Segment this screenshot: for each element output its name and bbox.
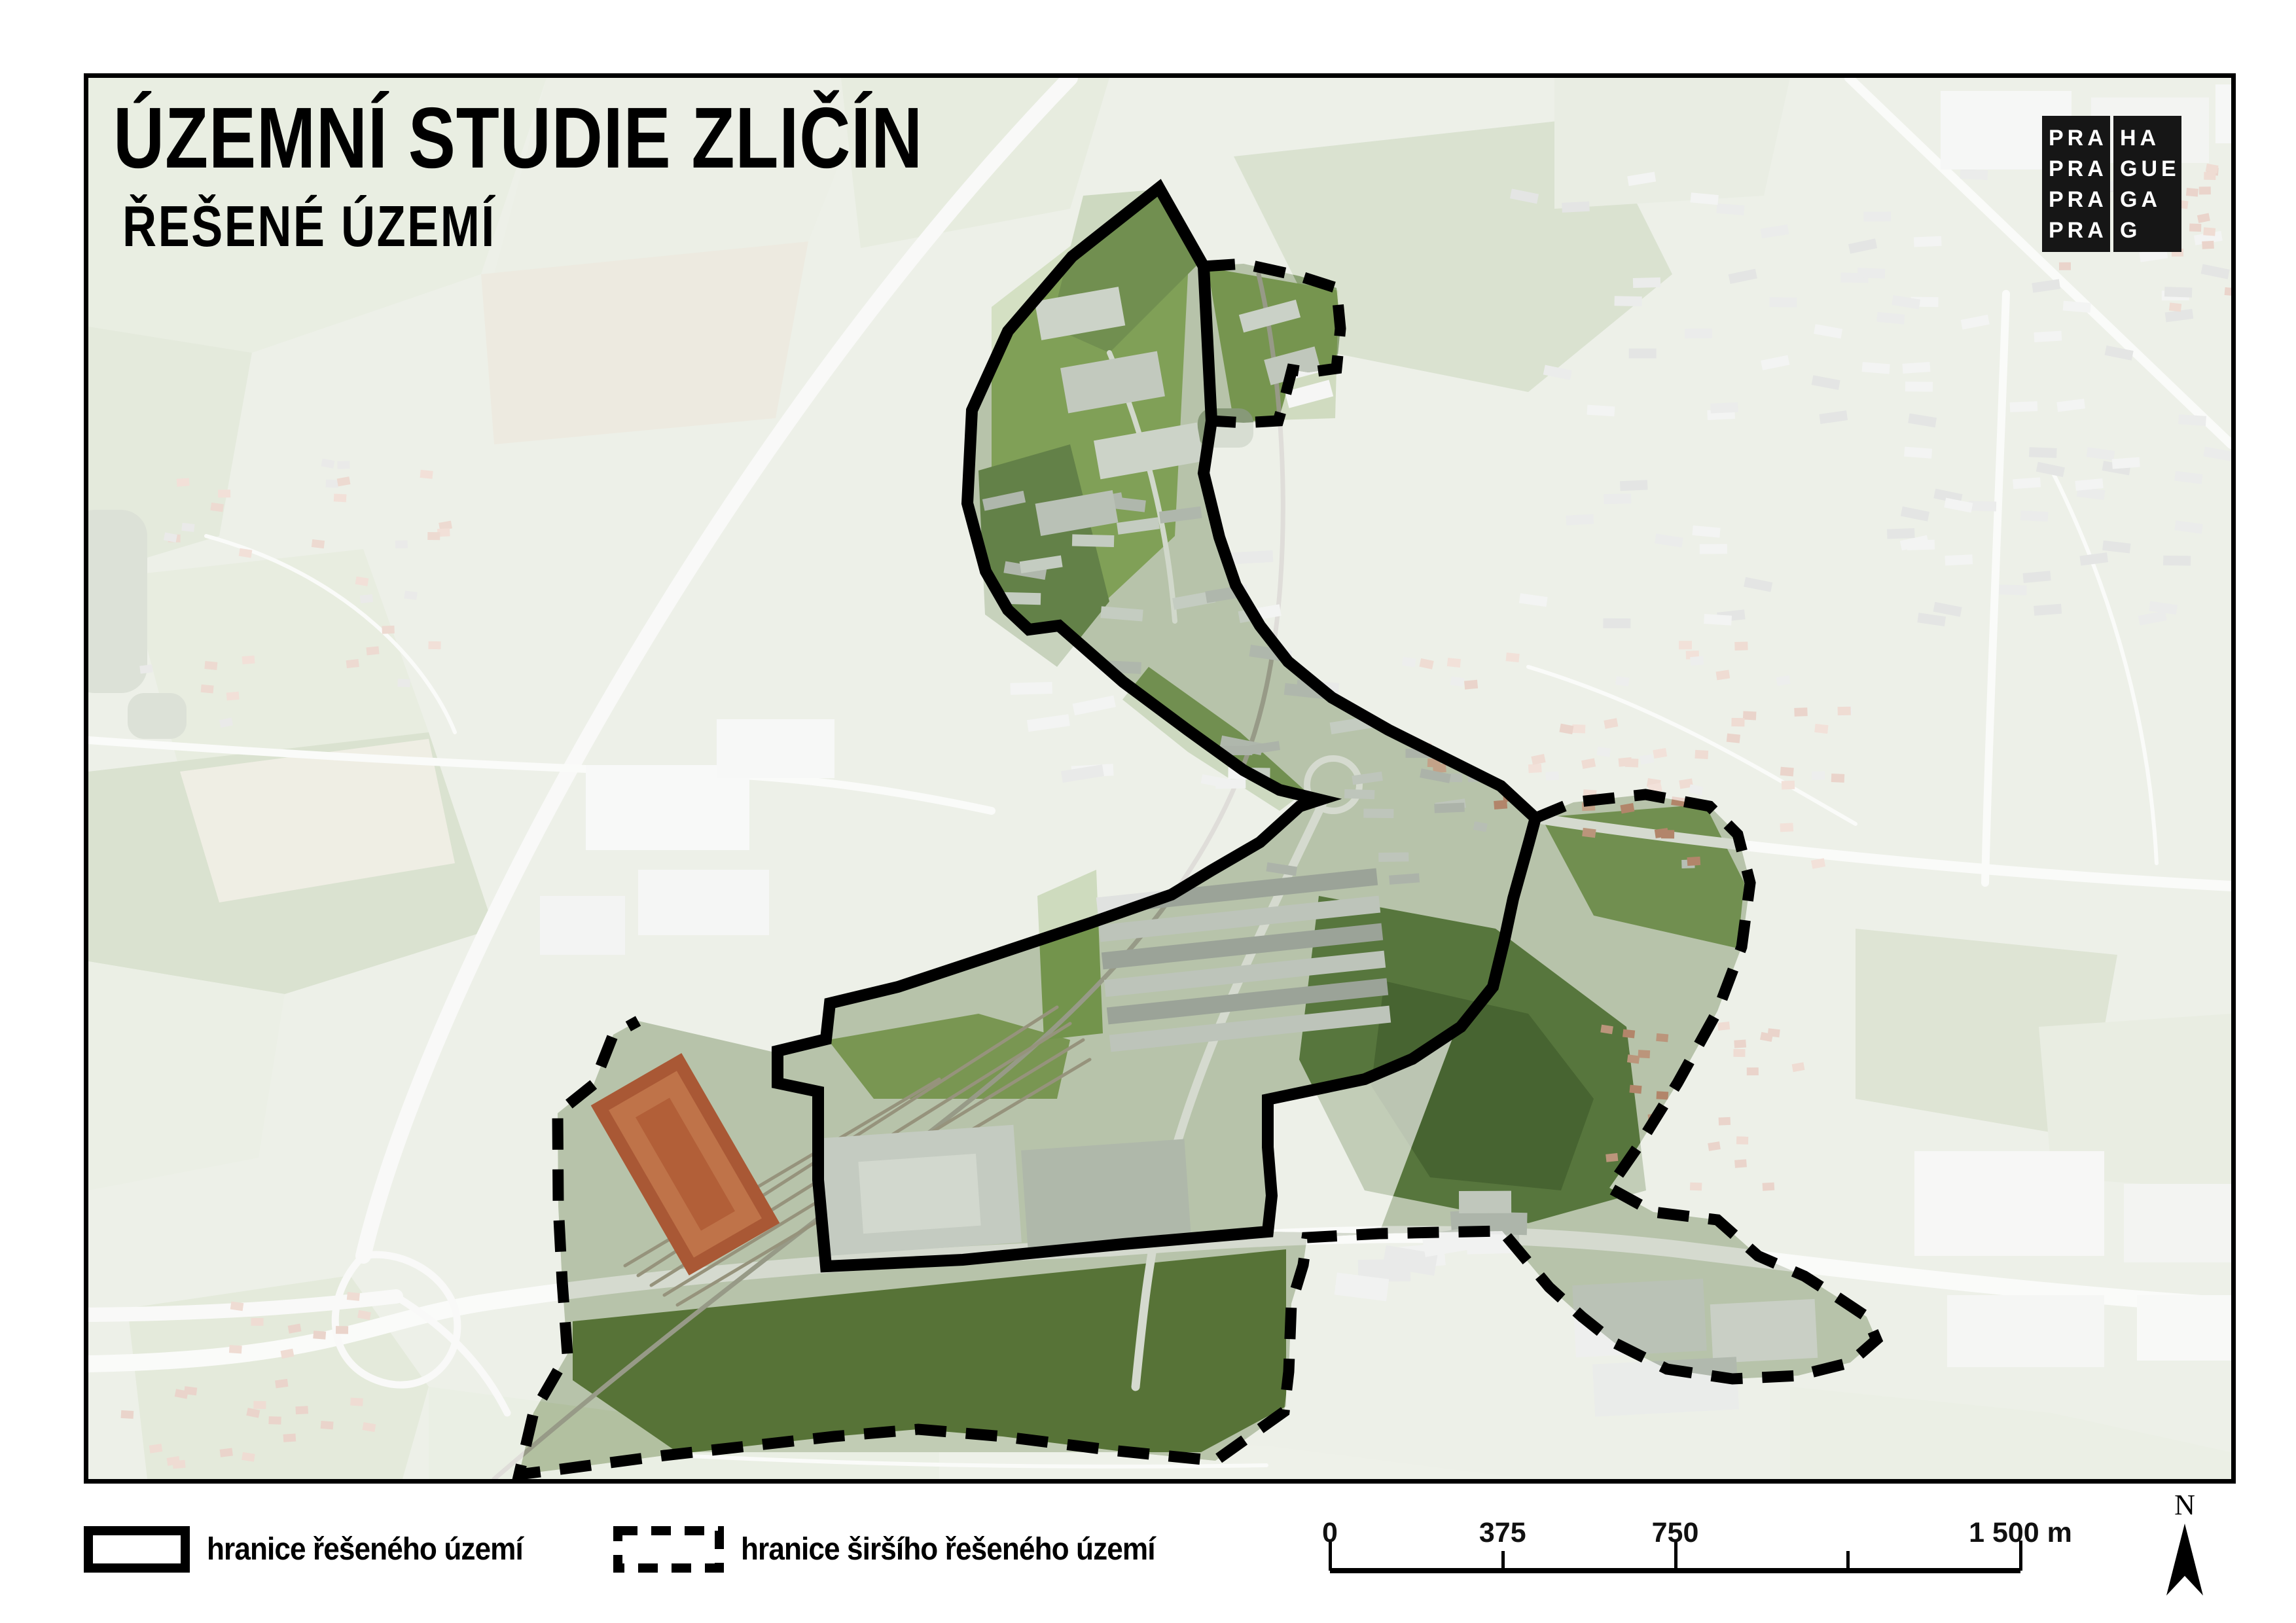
legend-label-dashed: hranice širšího řešeného území (741, 1531, 1155, 1567)
page-title: ÚZEMNÍ STUDIE ZLIČÍN (113, 95, 923, 181)
legend-label-solid: hranice řešeného území (207, 1531, 523, 1567)
dashed-boundary-swatch (613, 1526, 724, 1573)
north-indicator: N (2157, 1491, 2212, 1609)
prague-logo-text-row: PRA (2049, 158, 2110, 180)
title-block: ÚZEMNÍ STUDIE ZLIČÍN ŘEŠENÉ ÚZEMÍ (113, 95, 1101, 260)
prague-logo: PRAPRAPRAPRA HAGUEGAG (2042, 116, 2181, 252)
legend-item-dashed-boundary: hranice širšího řešeného území (613, 1526, 1191, 1573)
aerial-map-svg (88, 78, 2231, 1479)
north-label: N (2157, 1491, 2212, 1520)
scale-tick (1846, 1551, 1850, 1571)
solid-boundary-swatch (84, 1526, 190, 1573)
prague-logo-right-square: HAGUEGAG (2113, 116, 2181, 252)
prague-logo-text-row: GA (2120, 188, 2181, 211)
prague-logo-left-square: PRAPRAPRAPRA (2042, 116, 2110, 252)
prague-logo-text-row: GUE (2120, 158, 2181, 180)
scale-tick-label: 0 (1322, 1517, 1338, 1549)
legend-item-solid-boundary: hranice řešeného území (84, 1526, 550, 1573)
page-subtitle: ŘEŠENÉ ÚZEMÍ (122, 193, 925, 260)
map-canvas: ÚZEMNÍ STUDIE ZLIČÍN ŘEŠENÉ ÚZEMÍ PRAPRA… (84, 73, 2236, 1484)
page: ÚZEMNÍ STUDIE ZLIČÍN ŘEŠENÉ ÚZEMÍ PRAPRA… (0, 0, 2296, 1623)
prague-logo-text-row: PRA (2049, 127, 2110, 149)
scale-tick-label: 375 (1479, 1517, 1526, 1549)
prague-logo-text-row: HA (2120, 127, 2181, 149)
prague-logo-text-row: PRA (2049, 219, 2110, 241)
prague-logo-text-row: PRA (2049, 188, 2110, 211)
north-arrow-icon (2166, 1524, 2203, 1597)
scale-tick-label: 1 500 m (1969, 1517, 2072, 1549)
scale-tick-label: 750 (1652, 1517, 1699, 1549)
scale-tick (1501, 1551, 1505, 1571)
prague-logo-text-row: G (2120, 219, 2181, 241)
scale-bar: 03757501 500 m (1330, 1517, 2089, 1582)
